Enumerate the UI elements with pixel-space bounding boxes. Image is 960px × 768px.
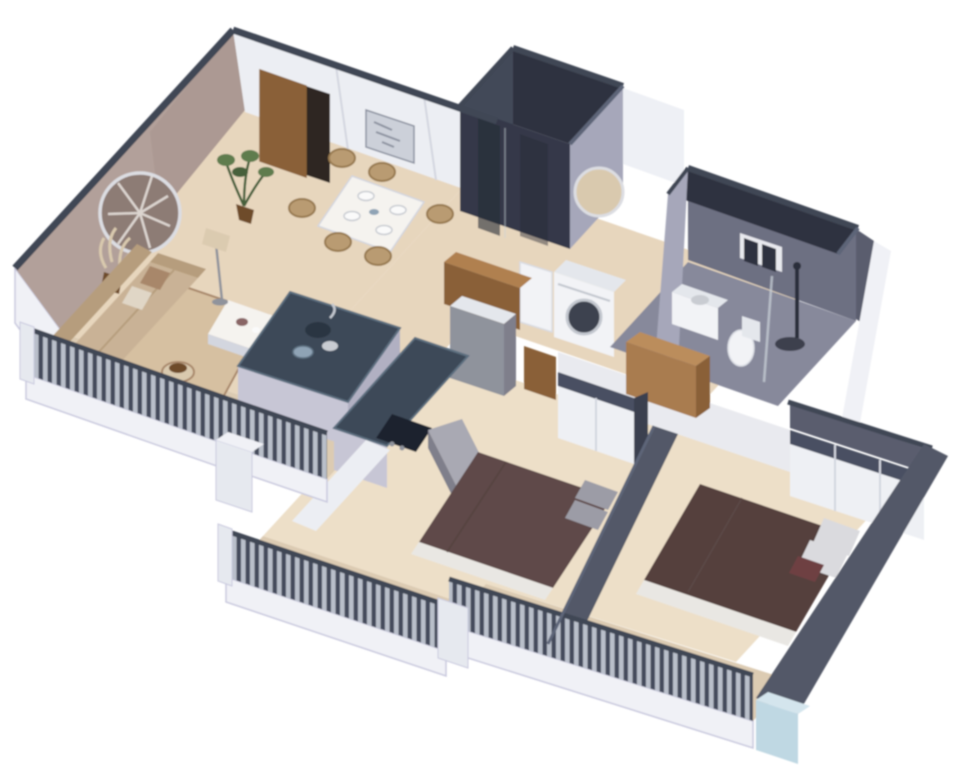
shower-head [793, 262, 801, 270]
floor-lamp-base [212, 299, 228, 306]
plant-leaves [232, 167, 248, 177]
laundry-cabinet [520, 262, 552, 332]
center-bowl [369, 209, 379, 215]
dining-chair [329, 149, 355, 167]
dining-chair [325, 233, 351, 251]
table-decor-flowers [236, 318, 248, 326]
render-root [15, 30, 948, 764]
railing-post [218, 524, 232, 586]
shower-base [775, 337, 805, 351]
white-corner-pillar [216, 440, 252, 512]
refrigerator-side [504, 314, 516, 396]
island-sink [305, 322, 331, 338]
floorplan-render-stage [0, 0, 960, 768]
shower-interior-streak [520, 134, 548, 246]
wood-partition-side [696, 356, 710, 418]
bowl [293, 346, 313, 358]
corridor-wall [623, 88, 684, 186]
railing-post [20, 322, 34, 384]
balcony-divider [438, 598, 468, 668]
door-opening [306, 86, 330, 183]
bowl [322, 341, 338, 351]
dining-chair [427, 205, 453, 223]
dining-chair [365, 247, 391, 265]
washer-door [567, 300, 601, 334]
plant-leaves [258, 167, 274, 177]
place-setting [376, 226, 392, 235]
plant-leaves [241, 150, 259, 162]
place-setting [344, 212, 360, 221]
shower-glass-streak [478, 118, 500, 236]
table-decor-vase [252, 327, 260, 333]
cooktop-knob [400, 446, 405, 451]
dining-chair [369, 163, 395, 181]
place-setting [390, 206, 406, 215]
plant-leaves [217, 154, 235, 166]
kitchen-fixtures [444, 252, 532, 396]
entry-door-leaf [260, 70, 306, 177]
bathroom-round-mirror [575, 168, 623, 216]
place-setting [358, 192, 374, 201]
planter-soil [169, 363, 187, 373]
dining-chair [289, 199, 315, 217]
cooktop-knob [390, 442, 395, 447]
floorplan-render [0, 0, 960, 768]
vanity-sink [691, 295, 709, 305]
